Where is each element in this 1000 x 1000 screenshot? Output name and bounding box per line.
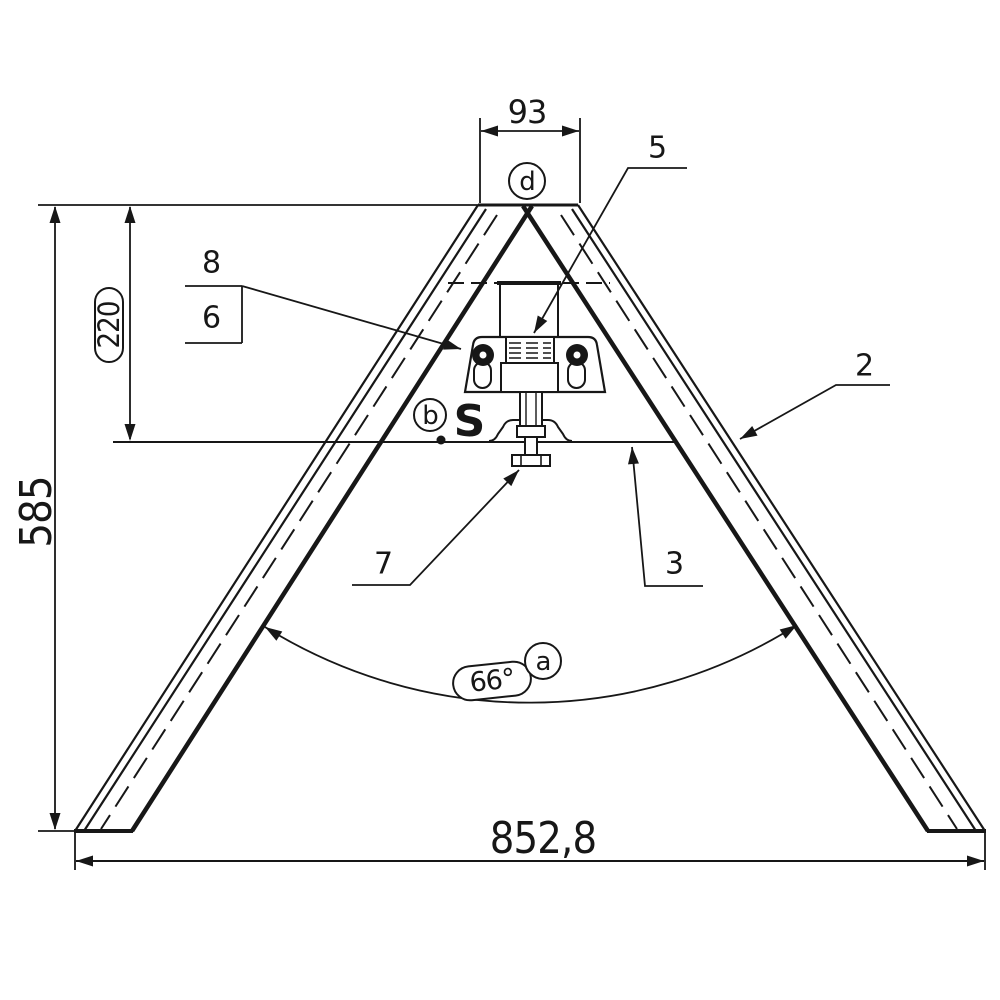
right-leg-outer-edge-2: [572, 209, 976, 831]
dim-text-220: 220: [92, 301, 127, 348]
right-leg-hidden-centerline: [561, 215, 957, 829]
right-leg-inner-edge: [523, 206, 928, 831]
leader-2: [740, 385, 890, 439]
part-label-6: 6: [202, 301, 220, 336]
left-bolt-head-center: [480, 352, 487, 359]
a-frame-drawing: S 585 220 93 852,8: [0, 0, 1000, 1000]
dimension-220: 220: [92, 206, 136, 441]
base-plate-rivet: [437, 436, 446, 445]
part-label-8: 8: [202, 246, 220, 281]
clamp-block: [501, 363, 558, 392]
dim-text-93: 93: [508, 93, 547, 131]
part-label-3: 3: [665, 547, 683, 582]
arrow-585-bottom: [50, 813, 61, 830]
thread-section: [506, 337, 554, 363]
technical-drawing-canvas: S 585 220 93 852,8: [0, 0, 1000, 1000]
leader-2-arrow: [737, 426, 757, 444]
arrow-585-top: [50, 206, 61, 223]
part-label-5: 5: [648, 131, 666, 166]
dim-text-852-8: 852,8: [490, 813, 596, 864]
dim-text-585: 585: [11, 476, 62, 547]
part-label-7: 7: [374, 547, 392, 582]
dimension-852-8: 852,8: [75, 813, 985, 870]
bolt-t-pin: [512, 455, 550, 466]
arrow-220-bottom: [125, 424, 136, 441]
dimension-585: 585: [11, 205, 478, 831]
leader-8-arrow: [443, 339, 462, 354]
balloon-b-label: b: [422, 401, 438, 431]
bolt-nut: [517, 426, 545, 437]
angle-text-66: 66°: [468, 663, 516, 699]
arrow-93-left: [481, 126, 498, 137]
arrow-852-right: [967, 856, 984, 867]
leader-8: [242, 286, 461, 349]
manufacturer-logo: S: [454, 396, 485, 447]
arrow-852-left: [76, 856, 93, 867]
leader-3-arrow: [627, 447, 639, 465]
left-leg-outer-edge-2: [84, 209, 486, 831]
bolt-shaft: [520, 392, 542, 426]
left-leg-outer-edge: [75, 205, 478, 831]
bolt-lower-shaft: [525, 437, 537, 456]
balloon-d-label: d: [519, 167, 535, 197]
part-label-2: 2: [855, 349, 873, 384]
right-bolt-head-center: [574, 352, 581, 359]
left-leg-hidden-centerline: [101, 215, 497, 829]
balloon-a-label: a: [536, 647, 551, 677]
pivot-mechanism: S: [448, 283, 610, 466]
arrow-93-right: [562, 126, 579, 137]
arrow-220-top: [125, 206, 136, 223]
center-tube: [500, 284, 558, 338]
